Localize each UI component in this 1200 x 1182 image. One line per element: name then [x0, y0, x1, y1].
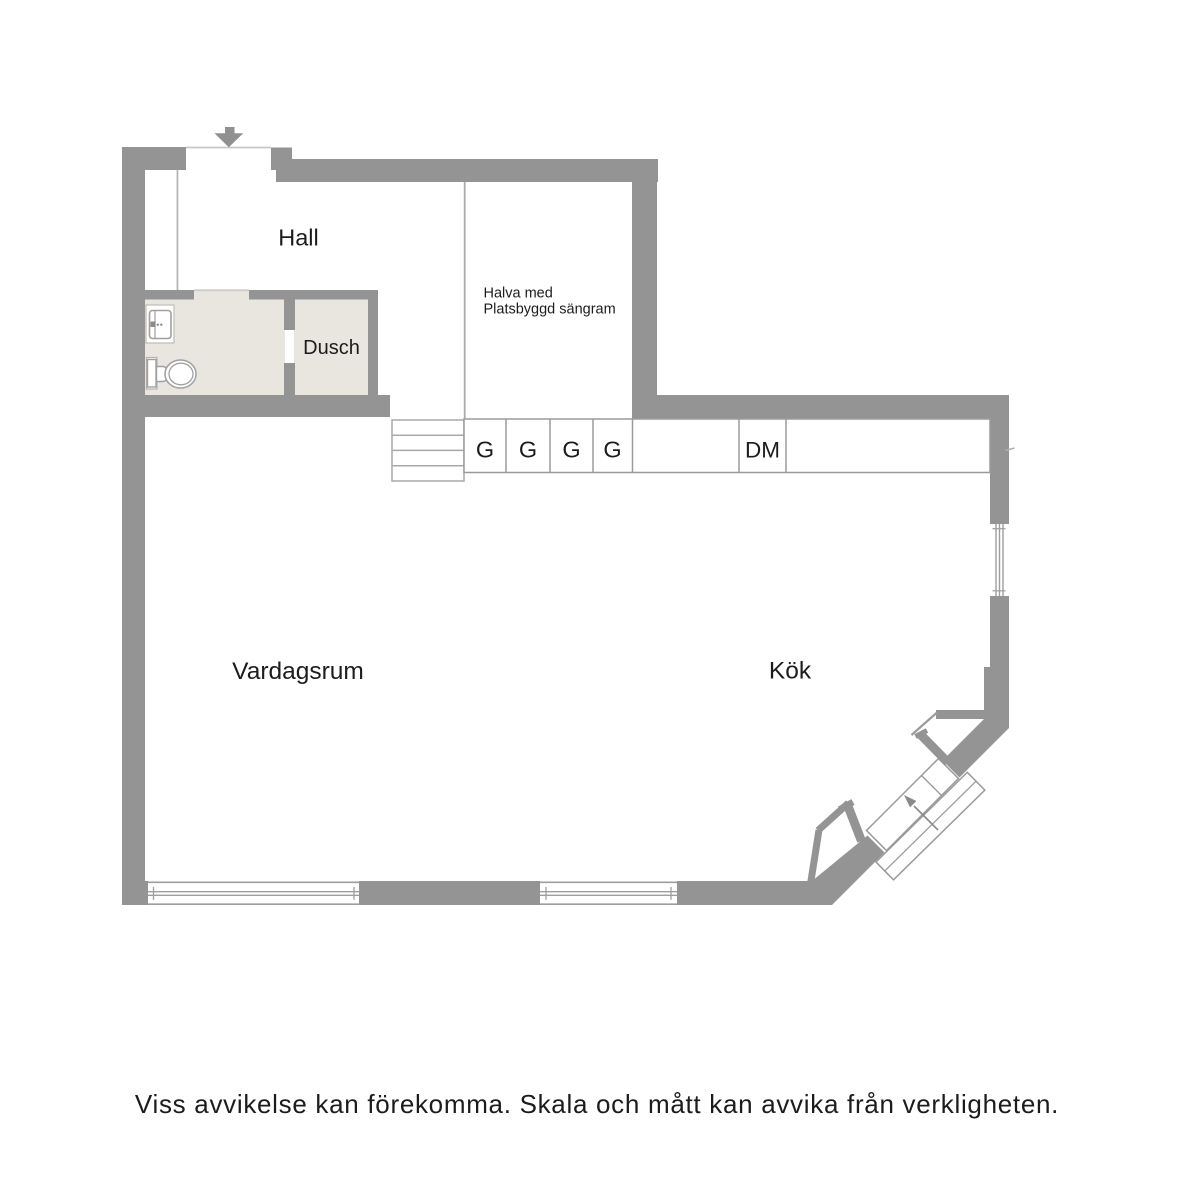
- svg-text:Platsbyggd sängram: Platsbyggd sängram: [484, 302, 616, 318]
- svg-text:Kök: Kök: [769, 658, 812, 685]
- svg-text:Dusch: Dusch: [303, 337, 360, 359]
- svg-text:Viss avvikelse kan förekomma.: Viss avvikelse kan förekomma. Skala och …: [135, 1089, 1059, 1119]
- svg-text:Vardagsrum: Vardagsrum: [232, 658, 364, 685]
- svg-text:G: G: [519, 437, 537, 463]
- svg-text:Hall: Hall: [278, 225, 318, 251]
- svg-text:G: G: [603, 437, 621, 463]
- svg-text:G: G: [562, 437, 580, 463]
- svg-text:DM: DM: [745, 438, 780, 463]
- svg-text:Halva med: Halva med: [484, 286, 553, 302]
- svg-text:G: G: [476, 437, 494, 463]
